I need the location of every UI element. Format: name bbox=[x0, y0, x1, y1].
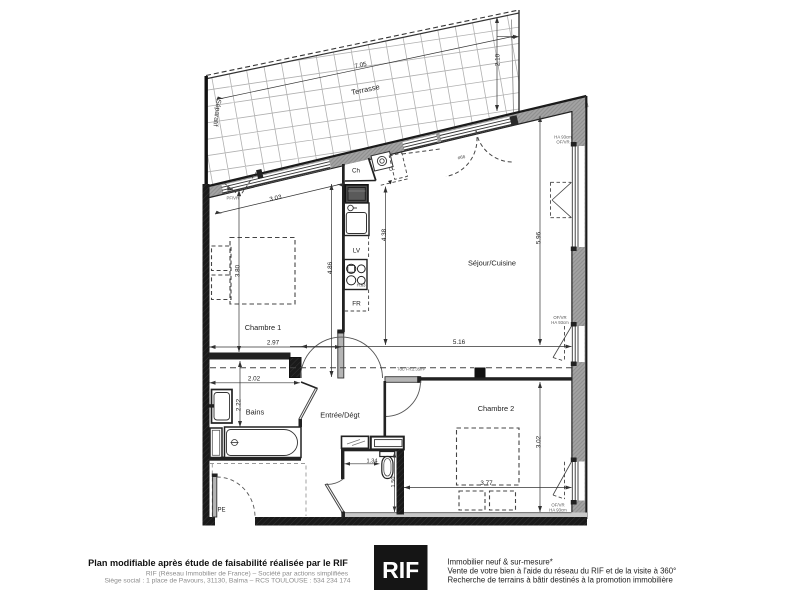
svg-text:Siège social : 1 place de Pavo: Siège social : 1 place de Pavours, 31130… bbox=[104, 578, 350, 585]
svg-text:PF/VR: PF/VR bbox=[227, 196, 240, 201]
svg-text:HA 93cm: HA 93cm bbox=[549, 508, 567, 513]
svg-text:Vente de votre bien à l'aide d: Vente de votre bien à l'aide du réseau d… bbox=[448, 567, 677, 576]
svg-text:RIF (Réseau Immobilier de Fran: RIF (Réseau Immobilier de France) – Soci… bbox=[146, 571, 349, 578]
svg-text:3.02: 3.02 bbox=[536, 435, 543, 448]
svg-text:HA 93cm: HA 93cm bbox=[551, 320, 569, 325]
svg-text:4.86: 4.86 bbox=[327, 261, 334, 274]
svg-text:Plan modifiable après étude de: Plan modifiable après étude de faisabili… bbox=[88, 558, 348, 568]
svg-text:PE: PE bbox=[218, 508, 226, 514]
svg-text:Entrée/Dégt: Entrée/Dégt bbox=[320, 411, 359, 420]
svg-text:Bains: Bains bbox=[246, 408, 265, 417]
svg-text:Chambre 2: Chambre 2 bbox=[478, 404, 515, 413]
svg-text:Ch: Ch bbox=[352, 168, 360, 175]
svg-text:Immobilier neuf & sur-mesure*: Immobilier neuf & sur-mesure* bbox=[448, 558, 553, 567]
svg-text:2.22: 2.22 bbox=[236, 398, 243, 411]
svg-text:5.96: 5.96 bbox=[536, 231, 543, 244]
svg-text:3.80: 3.80 bbox=[235, 264, 242, 277]
svg-text:2.97: 2.97 bbox=[267, 340, 280, 347]
svg-text:FR: FR bbox=[352, 301, 361, 308]
svg-text:H:63: H:63 bbox=[357, 283, 367, 288]
svg-text:TdC Fh:2.35m²: TdC Fh:2.35m² bbox=[397, 366, 426, 371]
svg-text:LV: LV bbox=[353, 248, 361, 255]
svg-text:Chambre 1: Chambre 1 bbox=[245, 323, 282, 332]
svg-text:4.38: 4.38 bbox=[381, 228, 388, 241]
svg-text:1.34: 1.34 bbox=[367, 459, 378, 465]
svg-text:2.10: 2.10 bbox=[495, 53, 502, 66]
svg-text:1.50: 1.50 bbox=[391, 477, 397, 488]
svg-text:RIF: RIF bbox=[382, 557, 419, 583]
svg-text:Recherche de terrains à bâtir: Recherche de terrains à bâtir destinés à… bbox=[448, 576, 673, 585]
svg-text:3.77: 3.77 bbox=[480, 480, 493, 487]
svg-text:OF/VR: OF/VR bbox=[556, 140, 569, 145]
svg-text:2.02: 2.02 bbox=[248, 375, 261, 382]
svg-text:5.16: 5.16 bbox=[453, 339, 466, 346]
svg-text:Séjour/Cuisine: Séjour/Cuisine bbox=[468, 259, 516, 268]
